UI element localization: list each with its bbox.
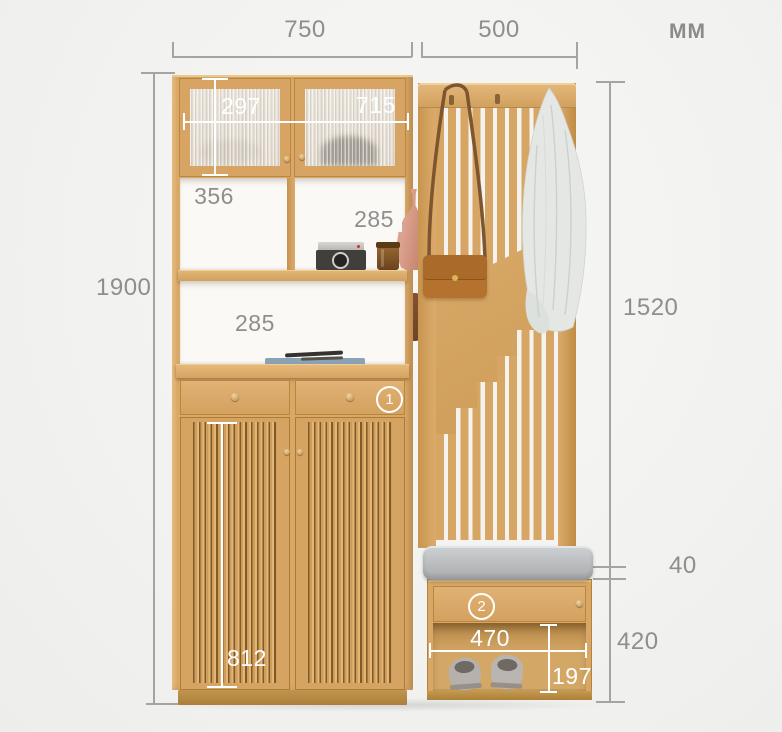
slat-door-knob-right — [297, 449, 303, 455]
jar-highlight — [381, 249, 384, 267]
dim-tick — [596, 81, 625, 83]
dim-label-upper-niche-height: 285 — [346, 207, 402, 232]
slat-door-knob-left — [284, 449, 290, 455]
dim-label-shoe-shelf-height: 197 — [552, 665, 592, 688]
dim-line-750 — [172, 56, 412, 58]
dim-tick — [596, 701, 625, 703]
dim-tick — [593, 578, 626, 580]
dim-line-715 — [183, 121, 409, 123]
dim-tick — [421, 42, 423, 57]
dim-label-middle-niche-height: 285 — [233, 311, 277, 336]
product-dimension-diagram: 750 500 MM 1900 1520 297 715 356 285 285… — [0, 0, 782, 732]
dim-label-upper-cabinet-width: 715 — [356, 94, 396, 117]
dim-line-500 — [421, 56, 577, 58]
hanging-shirt — [493, 85, 597, 340]
dim-tick — [183, 113, 185, 130]
dim-line-812 — [221, 423, 223, 687]
dim-tick — [540, 624, 557, 626]
marker-bench-drawer: 2 — [468, 593, 495, 620]
dim-label-bench-height: 420 — [617, 630, 659, 654]
dim-tick — [540, 691, 557, 693]
shelf-divider — [287, 178, 295, 270]
door-slats — [193, 422, 277, 683]
shelf-board — [178, 270, 407, 281]
dim-tick — [576, 42, 578, 69]
dim-label-rack-width: 500 — [475, 18, 523, 42]
dim-tick — [429, 643, 431, 658]
glass-door-knob-right — [299, 154, 305, 160]
cabinet-plinth — [178, 690, 407, 705]
dim-tick — [202, 174, 228, 176]
camera-red-dot — [357, 245, 360, 248]
bag-button — [452, 275, 458, 281]
amber-jar — [377, 244, 399, 270]
dim-tick — [411, 42, 413, 57]
dim-tick — [593, 566, 626, 568]
slat-door-right — [295, 417, 405, 690]
dim-line-right — [609, 81, 611, 702]
drawer-knob-right — [346, 393, 354, 401]
dim-tick — [407, 113, 409, 130]
dim-tick — [202, 78, 228, 80]
drawer-knob-left — [231, 393, 239, 401]
bench-drawer-knob — [576, 600, 583, 607]
jar-lid — [376, 242, 400, 248]
dim-tick — [207, 422, 237, 424]
middle-open-niche — [180, 281, 405, 364]
bench-drawer — [433, 586, 586, 622]
glass-door-knob-left — [284, 156, 290, 162]
bench-bottom-rail — [427, 691, 592, 700]
dim-label-rack-height: 1520 — [623, 296, 678, 320]
vintage-camera — [316, 242, 366, 270]
dim-tick — [585, 643, 587, 658]
marker-cabinet-drawer: 1 — [376, 386, 403, 413]
dim-label-glass-door-height: 297 — [221, 95, 261, 118]
units-label: MM — [669, 20, 706, 44]
dim-tick — [141, 72, 175, 74]
dim-label-bench-width: 470 — [462, 627, 518, 650]
dim-label-total-height: 1900 — [96, 276, 148, 300]
counter-top — [176, 364, 409, 378]
dim-tick — [207, 686, 237, 688]
dim-line-197 — [548, 625, 550, 693]
shoe-cabinet — [172, 75, 413, 690]
camera-lens — [332, 252, 349, 269]
dim-line-297 — [214, 79, 216, 176]
door-slats — [308, 422, 392, 683]
dim-label-cabinet-width: 750 — [281, 18, 329, 42]
leather-crossbody-bag — [423, 255, 487, 298]
bench-cushion — [423, 546, 593, 580]
dim-label-cushion-thickness: 40 — [669, 554, 697, 578]
gray-slippers — [446, 650, 528, 692]
dim-label-door-height: 812 — [227, 647, 267, 670]
dim-line-1900 — [153, 72, 155, 704]
dim-tick — [172, 42, 174, 57]
dim-label-shelf-width: 356 — [186, 185, 242, 208]
